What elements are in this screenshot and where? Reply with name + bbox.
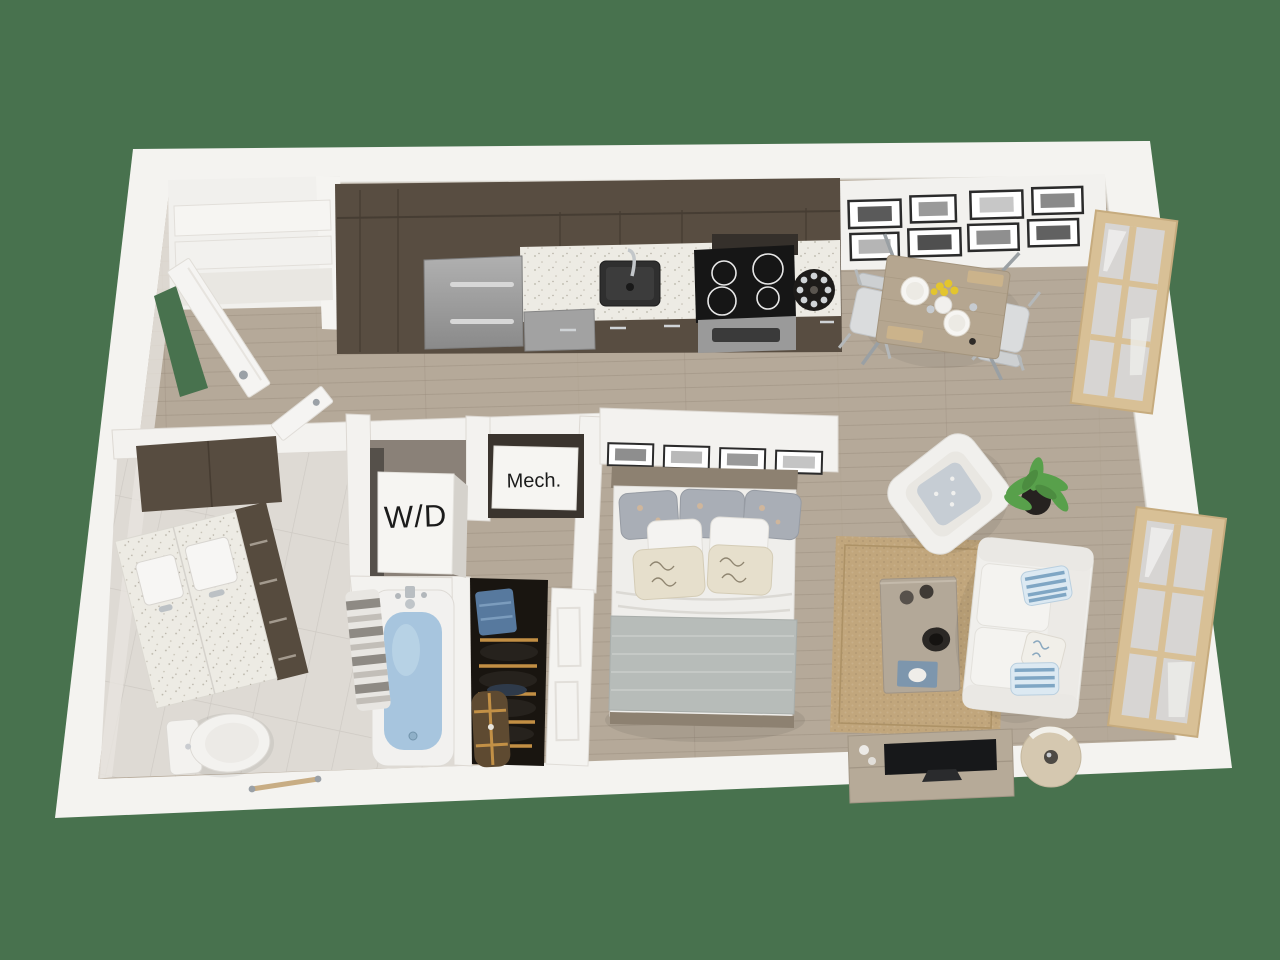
wall-wd-mech — [466, 416, 490, 521]
mechanical-label: Mech. — [506, 470, 561, 493]
oven-front — [698, 316, 796, 353]
bedroom-wall — [600, 408, 838, 474]
bed-blanket — [609, 616, 797, 714]
duffel-bag — [471, 690, 511, 768]
cooktop-range — [694, 245, 796, 323]
mechanical-closet: Mech. — [488, 434, 584, 518]
wine-caddy — [793, 269, 835, 311]
sofa-pillow-striped — [1010, 663, 1059, 696]
tub-drain — [409, 732, 417, 740]
closet-door — [546, 588, 594, 766]
coffee-table — [880, 577, 960, 694]
washer-dryer-label: W/D — [383, 498, 447, 535]
floor-plan-render: W/D Mech. — [0, 0, 1280, 960]
console-decor — [859, 745, 869, 755]
refrigerator — [424, 256, 523, 349]
dishwasher — [524, 309, 595, 351]
floor-lamp — [1021, 727, 1081, 787]
folded-jeans — [475, 588, 517, 636]
tv-console — [848, 729, 1014, 803]
wall-wd-left — [346, 414, 374, 597]
floor-plan-stage: W/D Mech. — [0, 0, 1280, 960]
bed-pillows-accent — [632, 544, 773, 600]
wall-tub-closet — [452, 576, 472, 766]
bed — [605, 466, 805, 742]
washer-dryer-closet: W/D — [370, 440, 468, 578]
kitchen — [335, 178, 842, 354]
wardrobe-closet — [470, 578, 548, 768]
console-decor — [868, 757, 876, 765]
